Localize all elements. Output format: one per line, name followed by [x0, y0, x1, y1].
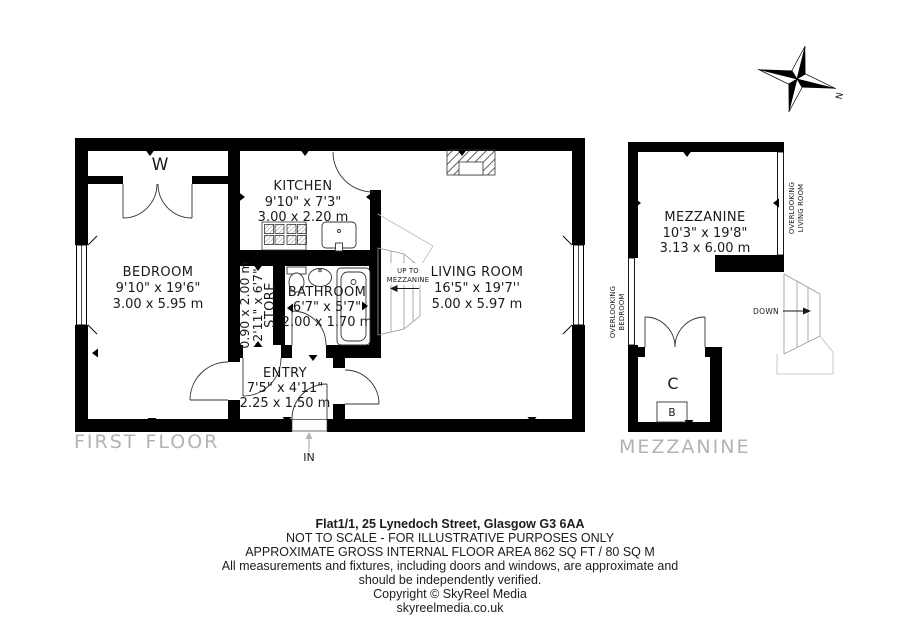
bedroom-label: BEDROOM: [123, 265, 194, 280]
living-room-dims-imperial: 16'5" x 19'7'': [434, 281, 520, 296]
bathroom-dims-imperial: 6'7" x 5'7": [293, 300, 361, 315]
stairs-up-arrow: [390, 285, 419, 292]
living-room-dims-metric: 5.00 x 5.97 m: [432, 297, 523, 312]
entry-dims-imperial: 7'5" x 4'11": [247, 381, 323, 396]
property-address: Flat1/1, 25 Lynedoch Street, Glasgow G3 …: [0, 517, 900, 531]
entry-dims-metric: 2.25 x 1.50 m: [240, 396, 331, 411]
stairs-down: [777, 274, 833, 374]
entrance-in-label: IN: [303, 451, 314, 464]
living-room-label: LIVING ROOM: [431, 265, 524, 280]
floorplan-sheet: N BEDROOM 9'10" x 19'6" 3.00 x 5.95 m KI…: [0, 0, 900, 636]
compass-icon: [750, 36, 844, 121]
fireplace: [447, 150, 495, 175]
mezzanine-double-doors: [645, 317, 705, 347]
bathroom-label: BATHROOM: [288, 285, 366, 300]
window-left: [77, 236, 98, 334]
window-right: [563, 236, 584, 334]
cupboard-label: C: [667, 374, 678, 393]
copyright-line: Copyright © SkyReel Media: [0, 587, 900, 601]
website-line: skyreelmedia.co.uk: [0, 601, 900, 615]
bedroom-dims-imperial: 9'10" x 19'6": [116, 281, 201, 296]
store-label: STORE: [263, 282, 278, 328]
kitchen-dims-imperial: 9'10" x 7'3": [265, 195, 341, 210]
overlooking-living-room-label-line2: LIVING ROOM: [797, 184, 805, 232]
mezzanine-dims-metric: 3.13 x 6.00 m: [660, 241, 751, 256]
overlooking-bedroom-label-line2: BEDROOM: [618, 294, 626, 331]
entry-label: ENTRY: [263, 366, 307, 381]
basin: [309, 269, 332, 287]
kitchen-label: KITCHEN: [273, 179, 332, 194]
title-block: Flat1/1, 25 Lynedoch Street, Glasgow G3 …: [0, 517, 900, 615]
mezzanine-floor-title: MEZZANINE: [619, 436, 750, 458]
area-note: APPROXIMATE GROSS INTERNAL FLOOR AREA 86…: [0, 545, 900, 559]
mezzanine-walls: [628, 142, 784, 432]
overlooking-bedroom-label-line1: OVERLOOKING: [609, 286, 617, 338]
kitchen-sink: [322, 222, 356, 251]
mezzanine-dims-imperial: 10'3" x 19'8": [663, 226, 748, 241]
stove: [262, 222, 307, 250]
mezzanine-label: MEZZANINE: [664, 210, 745, 225]
railing-overlooking-bedroom: [629, 258, 635, 345]
disclaimer-line1: All measurements and fixtures, including…: [0, 559, 900, 573]
boiler-label: B: [668, 407, 675, 419]
stairs-down-label: DOWN: [753, 307, 779, 316]
wardrobe-label: W: [152, 155, 169, 175]
stairs-up-label-line1: UP TO: [397, 267, 419, 275]
stairs-up-label-line2: MEZZANINE: [387, 276, 429, 284]
bathroom-dims-metric: 2.00 x 1.70 m: [282, 315, 373, 330]
kitchen-dims-metric: 3.00 x 2.20 m: [258, 210, 349, 225]
entrance-arrow: [306, 432, 313, 452]
bedroom-dims-metric: 3.00 x 5.95 m: [113, 297, 204, 312]
overlooking-living-room-label-line1: OVERLOOKING: [788, 182, 796, 234]
disclaimer-line2: should be independently verified.: [0, 573, 900, 587]
first-floor-title: FIRST FLOOR: [74, 431, 219, 453]
compass-north-label: N: [832, 91, 843, 100]
scale-note: NOT TO SCALE - FOR ILLUSTRATIVE PURPOSES…: [0, 531, 900, 545]
